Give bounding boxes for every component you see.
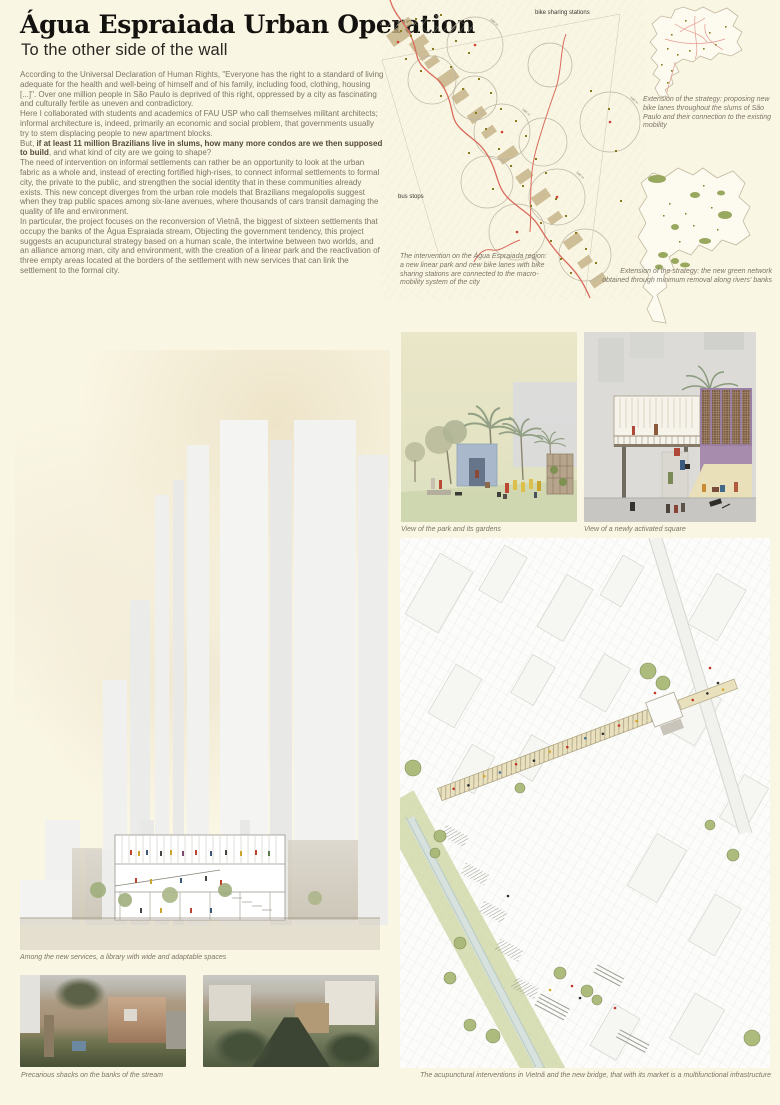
- intro-paragraph-2: Here I collaborated with students and ac…: [20, 109, 384, 138]
- garden-shelf: [547, 454, 573, 494]
- wood-post: [44, 1015, 54, 1057]
- stair-block: [662, 452, 688, 498]
- library-building: [115, 835, 285, 920]
- vegetation: [323, 1031, 379, 1067]
- tree-canopy: [54, 977, 106, 1011]
- mobility-map-caption: The intervention on the Água Espraiada r…: [400, 253, 552, 288]
- axo-caption: The acupunctural interventions in Vietnã…: [400, 1072, 771, 1081]
- photos-caption: Precarious shacks on the banks of the st…: [21, 1072, 321, 1081]
- gray-shack: [166, 1011, 186, 1049]
- white-building: [20, 975, 40, 1033]
- render-park: [401, 332, 577, 522]
- bg-block-2: [630, 332, 664, 358]
- render-square-caption: View of a newly activated square: [584, 526, 754, 535]
- sp-map-green-caption: Extension of the strategy: the new green…: [600, 268, 772, 286]
- sp-map-green: [633, 163, 768, 328]
- collage-ground: [20, 918, 380, 950]
- blue-debris: [72, 1041, 86, 1051]
- intro-p3-end: , and what kind of city are we going to …: [49, 148, 211, 157]
- render-park-caption: View of the park and its gardens: [401, 526, 571, 535]
- intro-paragraph-1: According to the Universal Declaration o…: [20, 70, 384, 109]
- poster-canvas: Água Espraiada Urban Operation To the ot…: [0, 0, 780, 1105]
- sp-map-bike: [645, 4, 757, 99]
- intro-paragraph-4: The need of intervention on informal set…: [20, 158, 384, 217]
- window: [124, 1009, 137, 1021]
- map-label-bus-stops: bus stops: [398, 194, 424, 200]
- section-caption: Among the new services, a library with w…: [20, 954, 320, 963]
- white-building: [209, 985, 251, 1021]
- blue-pavilion: [457, 444, 497, 486]
- intro-paragraph-5: In particular, the project focuses on th…: [20, 217, 384, 276]
- collage-pier-right: [288, 840, 358, 920]
- intro-text: According to the Universal Declaration o…: [20, 70, 384, 276]
- photo-shacks-1: [20, 975, 186, 1067]
- page-subtitle: To the other side of the wall: [21, 42, 228, 59]
- sp-outline: [650, 7, 742, 97]
- sp-outline-2: [638, 168, 750, 323]
- photo-shacks-2: [203, 975, 379, 1067]
- render-square: [584, 332, 756, 522]
- axo-drawing: [400, 538, 770, 1068]
- section-drawing: [20, 820, 380, 953]
- brick-wall: [108, 997, 166, 1043]
- white-building: [325, 981, 375, 1025]
- intro-p3-start: But,: [20, 139, 36, 148]
- sp-map-bike-caption: Extension of the strategy: proposing new…: [643, 96, 780, 131]
- vegetation: [213, 1027, 273, 1067]
- bg-block-1: [598, 338, 624, 382]
- bg-block-3: [704, 332, 744, 350]
- map-label-bike-stations: bike sharing stations: [535, 10, 590, 16]
- intro-paragraph-3: But, if at least 11 million Brazilians l…: [20, 139, 384, 159]
